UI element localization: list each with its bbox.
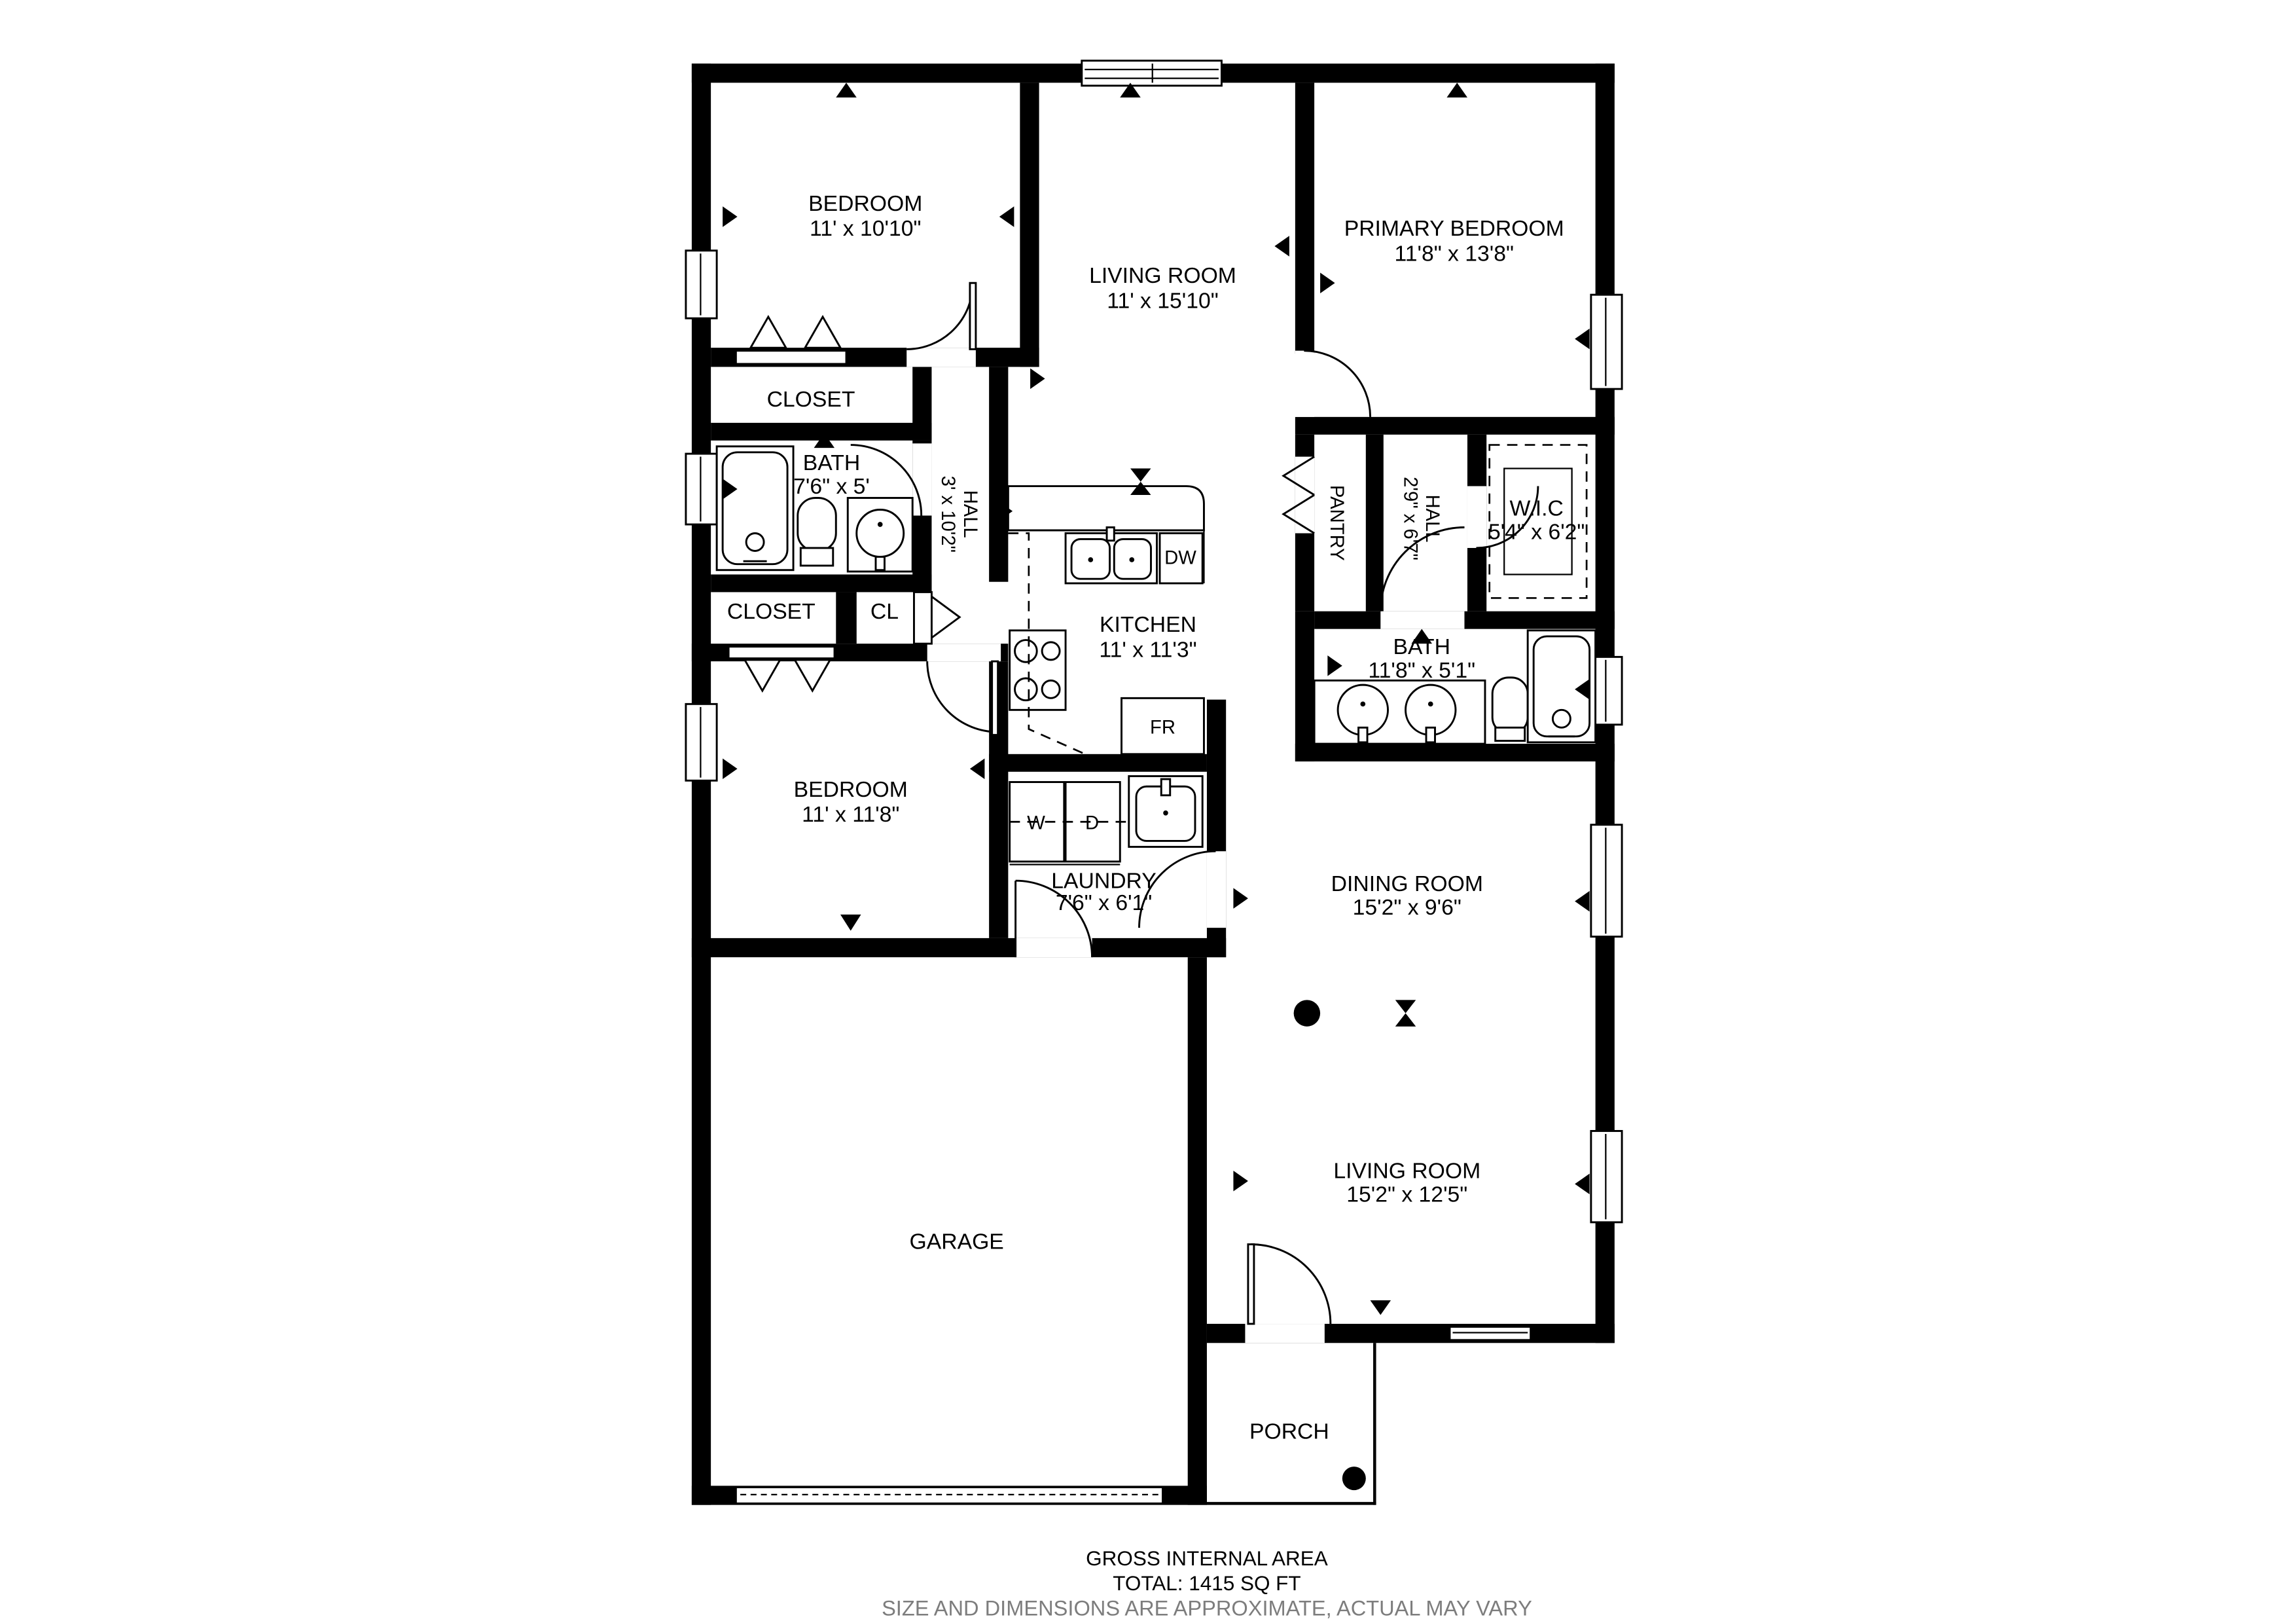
door-gap	[1380, 611, 1464, 629]
appliance-label-dryer: D	[1085, 812, 1099, 833]
room-dims-living1: 11' x 15'10"	[1107, 288, 1218, 313]
arrow-marker	[1320, 272, 1335, 293]
support-column	[1294, 1000, 1320, 1026]
room-label-pantry: PANTRY	[1326, 485, 1347, 561]
room-label-living2: LIVING ROOM	[1333, 1158, 1480, 1183]
door-gap	[906, 348, 976, 367]
arrow-marker	[723, 206, 737, 227]
room-dims-laundry: 7'6" x 6'1"	[1056, 890, 1152, 915]
door-bedroom1	[906, 283, 976, 349]
door-gap	[1207, 851, 1226, 928]
toilet	[798, 498, 836, 566]
room-label-primary: PRIMARY BEDROOM	[1344, 216, 1564, 241]
window	[1591, 1131, 1622, 1222]
toilet	[1492, 678, 1528, 741]
window	[1450, 1327, 1531, 1340]
porch-edge	[1373, 1343, 1376, 1504]
arrow-marker	[1575, 1174, 1589, 1194]
room-dims-bath1: 7'6" x 5'	[793, 474, 870, 499]
arrow-marker	[1233, 1171, 1247, 1191]
room-label-closet2: CLOSET	[727, 599, 816, 624]
footer-line3: SIZE AND DIMENSIONS ARE APPROXIMATE, ACT…	[882, 1596, 1532, 1620]
door-gap	[1295, 457, 1314, 534]
room-label-laundry: LAUNDRY	[1051, 868, 1157, 893]
room-label-bedroom2: BEDROOM	[794, 777, 908, 802]
wall	[989, 754, 1207, 772]
room-label-garage: GARAGE	[910, 1229, 1004, 1254]
stove	[1010, 630, 1066, 710]
sliding-door-closet1	[736, 317, 846, 364]
kitchen-sink	[1066, 527, 1157, 583]
room-dims-bath2: 11'8" x 5'1"	[1368, 658, 1475, 683]
room-dims-dining: 15'2" x 9'6"	[1353, 895, 1462, 920]
wall	[836, 592, 856, 644]
room-label-bath1: BATH	[803, 450, 860, 475]
window	[1591, 825, 1622, 937]
window	[1591, 295, 1622, 389]
door-gap	[912, 443, 931, 515]
room-dims-wic: 5'4" x 6'2"	[1488, 519, 1585, 544]
room-label-porch: PORCH	[1249, 1419, 1329, 1444]
room-dims-bedroom1: 11' x 10'10"	[810, 216, 921, 241]
arrow-marker	[1575, 891, 1589, 911]
appliance-label-washer: W	[1027, 812, 1045, 833]
wall	[1366, 435, 1384, 611]
arrow-marker	[1233, 888, 1247, 908]
arrow-marker	[1274, 236, 1289, 256]
wall	[692, 938, 1226, 957]
wall	[989, 367, 1008, 581]
room-label-hall1: HALL	[960, 490, 980, 538]
porch-column	[1342, 1467, 1366, 1490]
floor-plan-page: BEDROOM 11' x 10'10" LIVING ROOM 11' x 1…	[0, 0, 2296, 1623]
window	[686, 454, 717, 524]
room-dims-living2: 15'2" x 12'5"	[1346, 1182, 1467, 1207]
appliance-label-fridge: FR	[1150, 717, 1175, 738]
arrow-marker	[999, 206, 1014, 227]
arrow-marker	[1446, 82, 1467, 97]
room-label-bath2: BATH	[1393, 634, 1450, 659]
door-cl	[914, 592, 960, 644]
wall	[711, 574, 931, 592]
wall	[1295, 82, 1314, 354]
laundry-sink	[1129, 776, 1202, 847]
window	[1082, 61, 1222, 86]
window	[686, 704, 717, 780]
arrow-marker	[723, 759, 737, 779]
bathtub	[717, 447, 793, 570]
wall	[1295, 417, 1615, 435]
room-label-dining: DINING ROOM	[1331, 871, 1483, 896]
sink	[848, 498, 912, 572]
wall	[1295, 744, 1615, 761]
door-gap	[1295, 351, 1314, 417]
hourglass-marker	[1395, 1000, 1416, 1026]
arrow-marker	[840, 915, 861, 931]
door-gap	[1245, 1324, 1324, 1343]
door-gap	[927, 644, 1001, 661]
room-label-kitchen: KITCHEN	[1100, 612, 1196, 637]
wall	[1188, 957, 1207, 1505]
wall	[1295, 611, 1314, 761]
arrow-marker	[970, 759, 984, 779]
footer-line1: GROSS INTERNAL AREA	[1086, 1547, 1328, 1570]
footer-caption: GROSS INTERNAL AREA TOTAL: 1415 SQ FT SI…	[882, 1547, 1532, 1620]
wall	[1020, 82, 1039, 367]
window	[686, 251, 717, 318]
door-gap	[1016, 938, 1092, 957]
room-dims-primary: 11'8" x 13'8"	[1395, 241, 1514, 266]
footer-line2: TOTAL: 1415 SQ FT	[1113, 1572, 1300, 1595]
door-bedroom2	[927, 661, 998, 735]
arrow-marker	[1327, 655, 1342, 676]
arrow-marker	[836, 82, 856, 97]
room-dims-hall2: 2'9" x 6'7"	[1399, 477, 1420, 560]
room-dims-bedroom2: 11' x 11'8"	[802, 802, 899, 827]
room-label-hall2: HALL	[1422, 494, 1443, 542]
room-dims-hall1: 3' x 10'2"	[937, 476, 958, 553]
arrow-marker	[1575, 329, 1589, 349]
room-dims-kitchen: 11' x 11'3"	[1099, 637, 1196, 662]
room-label-wic: W.I.C	[1509, 496, 1563, 521]
room-label-cl: CL	[870, 599, 899, 624]
floor-plan-drawing: BEDROOM 11' x 10'10" LIVING ROOM 11' x 1…	[0, 0, 2296, 1623]
room-label-living1: LIVING ROOM	[1089, 263, 1236, 288]
garage-door	[736, 1487, 1162, 1504]
vanity-double-sink	[1314, 680, 1485, 744]
arrow-marker	[1030, 369, 1045, 389]
front-door	[1248, 1245, 1331, 1324]
appliance-label-dishwasher: DW	[1164, 548, 1196, 569]
door-gap	[1467, 486, 1486, 548]
arrow-marker	[1371, 1300, 1391, 1315]
room-label-closet1: CLOSET	[767, 387, 855, 412]
room-label-bedroom1: BEDROOM	[808, 191, 922, 216]
porch-edge	[1207, 1502, 1376, 1504]
sliding-door-closet2	[728, 647, 834, 691]
